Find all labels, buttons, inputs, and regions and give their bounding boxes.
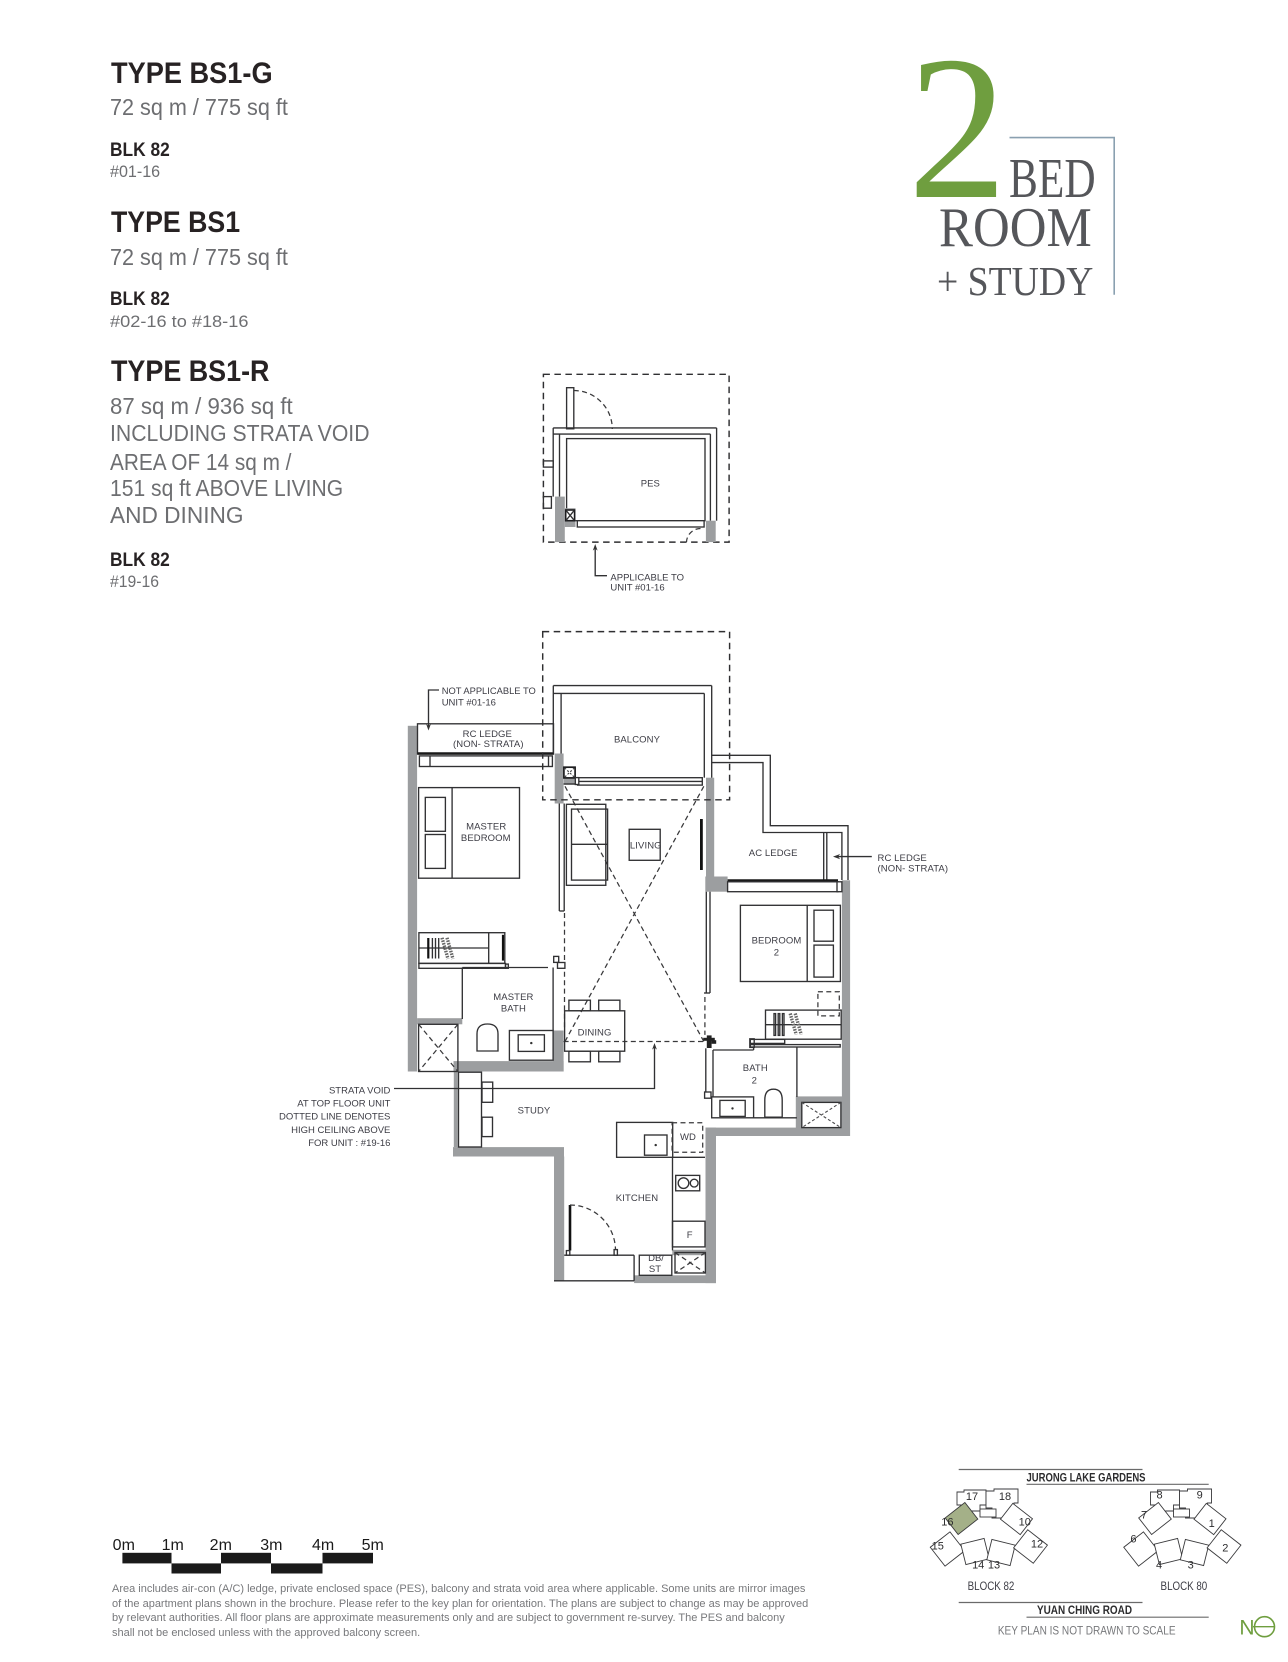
svg-text:DINING: DINING bbox=[578, 1028, 612, 1039]
svg-text:9: 9 bbox=[1197, 1490, 1203, 1502]
svg-text:1: 1 bbox=[1209, 1518, 1215, 1530]
svg-text:WD: WD bbox=[680, 1132, 696, 1143]
svg-text:BEDROOM: BEDROOM bbox=[461, 833, 511, 844]
svg-text:10: 10 bbox=[1019, 1517, 1031, 1529]
svg-text:STUDY: STUDY bbox=[518, 1106, 551, 1117]
svg-text:BLOCK 82: BLOCK 82 bbox=[968, 1579, 1015, 1593]
svg-text:8: 8 bbox=[1157, 1490, 1163, 1502]
svg-text:12: 12 bbox=[1031, 1539, 1043, 1551]
svg-text:UNIT #01-16: UNIT #01-16 bbox=[610, 583, 664, 594]
svg-text:4: 4 bbox=[1156, 1560, 1162, 1572]
svg-text:16: 16 bbox=[941, 1517, 953, 1529]
svg-text:RC LEDGE: RC LEDGE bbox=[878, 853, 927, 864]
svg-text:DB/: DB/ bbox=[648, 1253, 664, 1264]
svg-text:18: 18 bbox=[999, 1491, 1011, 1503]
svg-text:BATH: BATH bbox=[743, 1063, 768, 1074]
svg-text:MASTER: MASTER bbox=[493, 992, 533, 1003]
svg-text:3: 3 bbox=[1188, 1560, 1194, 1572]
svg-text:0m: 0m bbox=[113, 1537, 135, 1554]
svg-text:F: F bbox=[687, 1230, 693, 1241]
svg-text:2: 2 bbox=[752, 1076, 757, 1087]
svg-text:YUAN CHING ROAD: YUAN CHING ROAD bbox=[1037, 1603, 1132, 1617]
svg-text:PES: PES bbox=[641, 479, 660, 490]
svg-text:3m: 3m bbox=[260, 1537, 282, 1554]
svg-text:BATH: BATH bbox=[501, 1004, 526, 1015]
svg-text:7: 7 bbox=[1141, 1510, 1147, 1522]
svg-text:BEDROOM: BEDROOM bbox=[752, 936, 802, 947]
svg-text:5m: 5m bbox=[362, 1537, 384, 1554]
svg-text:KITCHEN: KITCHEN bbox=[616, 1193, 658, 1204]
svg-text:(NON- STRATA): (NON- STRATA) bbox=[878, 864, 949, 875]
svg-text:N: N bbox=[1239, 1617, 1254, 1640]
svg-text:FOR UNIT : #19-16: FOR UNIT : #19-16 bbox=[308, 1138, 390, 1149]
svg-text:NOT APPLICABLE TO: NOT APPLICABLE TO bbox=[442, 686, 536, 697]
svg-text:1m: 1m bbox=[162, 1537, 184, 1554]
svg-text:(NON- STRATA): (NON- STRATA) bbox=[453, 739, 524, 750]
svg-text:4m: 4m bbox=[312, 1537, 334, 1554]
svg-text:6: 6 bbox=[1130, 1534, 1136, 1546]
svg-text:AC LEDGE: AC LEDGE bbox=[749, 848, 798, 859]
svg-text:14: 14 bbox=[972, 1560, 984, 1572]
svg-text:2m: 2m bbox=[210, 1537, 232, 1554]
svg-text:AT TOP FLOOR UNIT: AT TOP FLOOR UNIT bbox=[297, 1099, 390, 1110]
svg-text:DOTTED LINE DENOTES: DOTTED LINE DENOTES bbox=[279, 1112, 390, 1123]
svg-text:BALCONY: BALCONY bbox=[614, 735, 661, 746]
svg-text:JURONG LAKE GARDENS: JURONG LAKE GARDENS bbox=[1027, 1471, 1146, 1485]
svg-text:STRATA VOID: STRATA VOID bbox=[329, 1086, 391, 1097]
svg-text:KEY PLAN IS NOT DRAWN TO SCALE: KEY PLAN IS NOT DRAWN TO SCALE bbox=[998, 1624, 1176, 1638]
svg-text:BLOCK 80: BLOCK 80 bbox=[1161, 1579, 1208, 1593]
svg-text:15: 15 bbox=[932, 1541, 944, 1553]
svg-text:HIGH CEILING ABOVE: HIGH CEILING ABOVE bbox=[291, 1125, 390, 1136]
svg-text:17: 17 bbox=[966, 1491, 978, 1503]
svg-text:2: 2 bbox=[1222, 1543, 1228, 1555]
svg-text:ST: ST bbox=[649, 1264, 661, 1275]
svg-text:UNIT #01-16: UNIT #01-16 bbox=[442, 698, 496, 709]
svg-text:LIVING: LIVING bbox=[630, 841, 662, 852]
svg-text:MASTER: MASTER bbox=[466, 821, 506, 832]
svg-text:2: 2 bbox=[774, 948, 779, 959]
svg-text:13: 13 bbox=[988, 1560, 1000, 1572]
